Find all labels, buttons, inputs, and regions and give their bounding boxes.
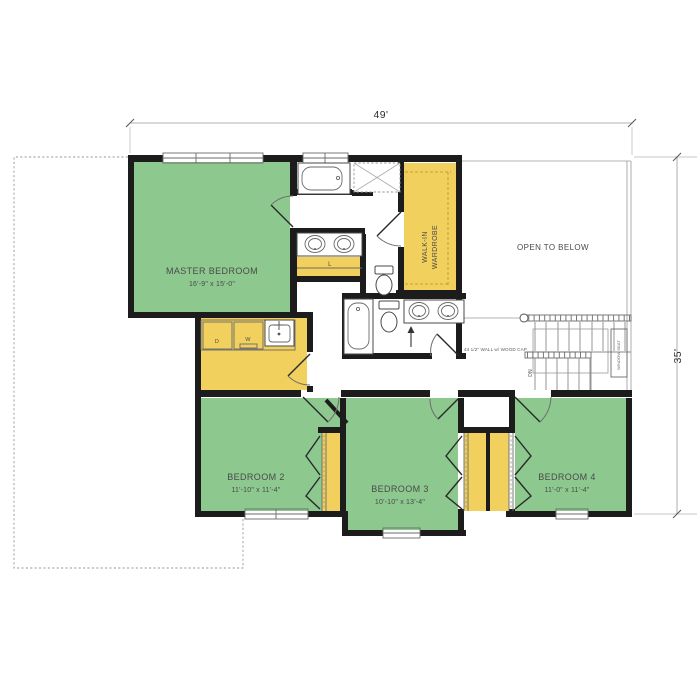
master-bedroom-size: 16'-9" x 15'-0" [189,281,235,288]
floor-plan-page: 49' 35' [0,0,700,700]
wardrobe-label-line2: WARDROBE [432,225,439,269]
bedroom3-closet-floor [464,433,486,511]
linen-label: L [328,262,332,268]
bedroom2-floor [201,398,340,511]
master-bedroom-label: MASTER BEDROOM [166,266,258,276]
bedroom2-label: BEDROOM 2 [227,472,285,482]
master-bedroom-window [163,153,263,163]
bedroom3-label: BEDROOM 3 [371,484,429,494]
dryer-label: D [215,339,219,345]
window-seat-label: WINDOW SEAT [616,340,621,370]
dimension-right: 35' [634,153,697,518]
bedroom4-floor [515,398,626,511]
toilet-master [375,266,393,295]
dimension-top: 49' [126,109,636,155]
bedroom4-size: 11'-0" x 11'-4" [544,487,589,494]
bedroom3-size: 10'-10" x 13'-4" [375,499,425,506]
stair-treads-lower [535,358,590,390]
overall-width-label: 49' [374,109,389,121]
vanity-second [404,300,464,323]
newel-post [520,314,528,322]
shower-stall [354,163,400,192]
bathroom-window [303,153,348,163]
stair-opening-outline [533,329,608,373]
wardrobe-label-line1: WALK-IN [422,231,429,263]
staircase: WINDOW SEAT DN 44 1/2" WALL w/ WOOD CAP [464,314,631,390]
laundry-sink [265,320,294,346]
bathroom2-door [431,334,459,356]
bedroom2-closet-floor [322,433,340,511]
washer-label: W [245,337,251,343]
stairs-dn-label: DN [528,369,534,377]
stair-treads-upper [535,322,625,351]
overall-height-label: 35' [672,349,684,364]
half-wall-wood-cap [525,352,591,358]
bathtub-master [298,163,350,194]
bathtub-second [344,299,373,354]
bedroom3-bay-floor [348,511,460,530]
toilet-second [379,301,399,332]
wardrobe-door [377,212,401,246]
direction-arrow [408,326,415,347]
open-to-below-label: OPEN TO BELOW [517,243,589,252]
bedroom4-label: BEDROOM 4 [538,472,596,482]
bedroom4-closet-floor [490,433,509,511]
floor-plan-drawing: 49' 35' [0,0,700,700]
open-to-below-area [462,161,631,390]
half-wall-label: 44 1/2" WALL w/ WOOD CAP [464,347,527,352]
vanity-master [297,233,362,256]
bedroom2-size: 11'-10" x 11'-4" [231,487,280,494]
master-bedroom-floor [134,162,290,312]
